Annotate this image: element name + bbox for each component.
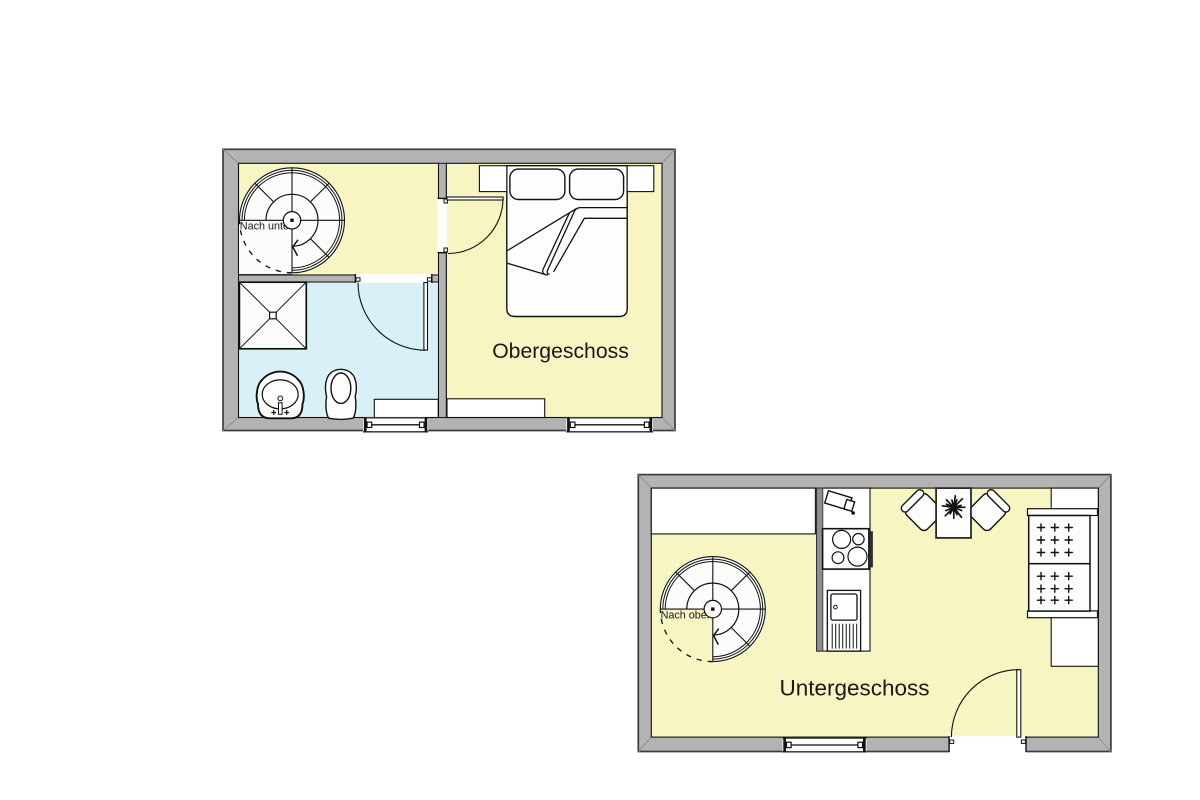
svg-text:Untergeschoss: Untergeschoss [779,676,929,701]
svg-text:Obergeschoss: Obergeschoss [492,340,629,363]
